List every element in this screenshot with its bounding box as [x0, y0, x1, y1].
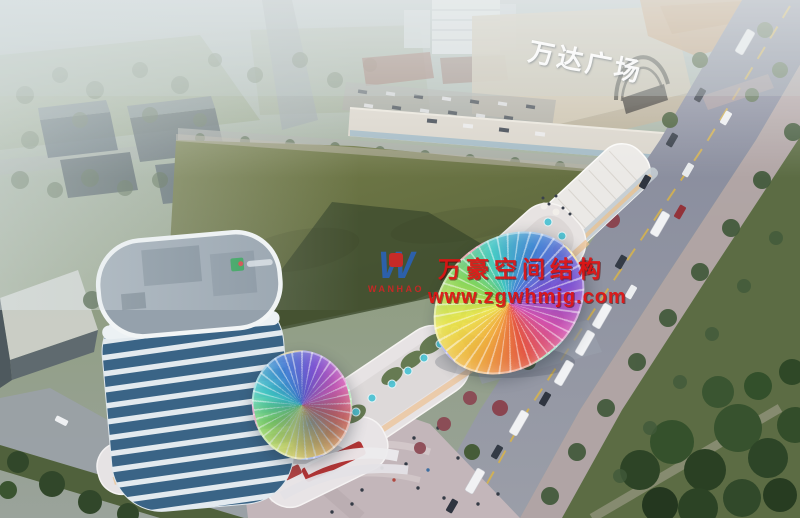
- watermark-website: www.zgwhmjg.com: [428, 286, 627, 309]
- watermark-company: 万豪空间结构: [438, 250, 627, 284]
- watermark: W WANHAO 万豪空间结构 www.zgwhmjg.com: [360, 250, 627, 309]
- logo-wordmark: WANHAO: [360, 284, 432, 294]
- watermark-text: 万豪空间结构 www.zgwhmjg.com: [438, 250, 627, 309]
- aerial-site-rendering: 万达广场 W WANHAO 万豪空间结构 www.zgwhmjg.com: [0, 0, 800, 518]
- logo-red-square: [389, 253, 403, 267]
- wanhao-logo-icon: W WANHAO: [360, 250, 432, 294]
